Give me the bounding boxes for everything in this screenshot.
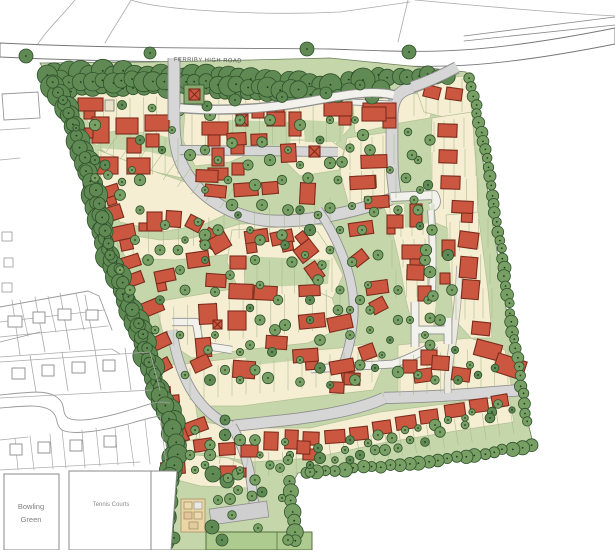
svg-text:Green: Green <box>21 515 42 524</box>
svg-text:Tennis Courts: Tennis Courts <box>93 502 130 508</box>
svg-text:Bowling: Bowling <box>18 502 44 511</box>
